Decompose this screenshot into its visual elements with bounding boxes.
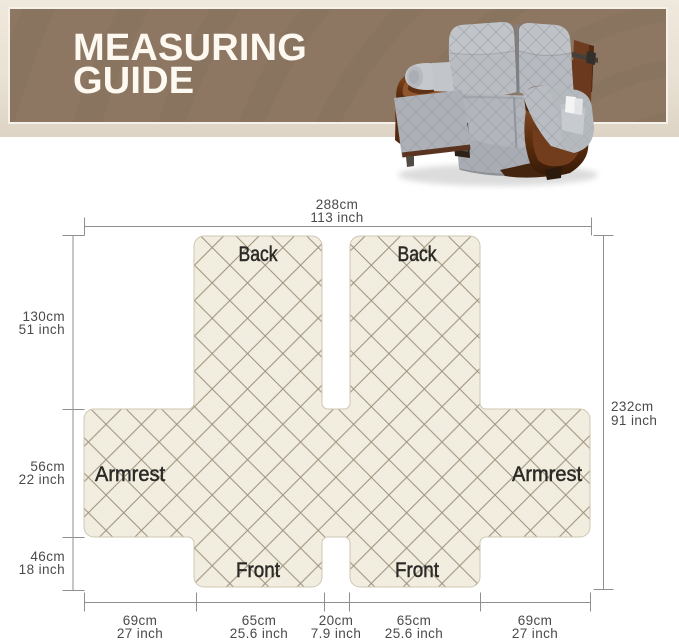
svg-text:27 inch: 27 inch — [512, 626, 558, 640]
svg-text:25.6 inch: 25.6 inch — [385, 626, 443, 640]
svg-text:Back: Back — [239, 243, 278, 266]
svg-text:Front: Front — [236, 559, 280, 582]
svg-text:18 inch: 18 inch — [19, 562, 65, 577]
svg-text:27 inch: 27 inch — [117, 626, 163, 640]
svg-text:232cm: 232cm — [611, 399, 654, 414]
svg-text:51 inch: 51 inch — [19, 322, 65, 337]
svg-text:7.9 inch: 7.9 inch — [311, 626, 361, 640]
svg-text:Armrest: Armrest — [95, 463, 165, 486]
svg-text:113 inch: 113 inch — [310, 210, 363, 225]
svg-text:91 inch: 91 inch — [611, 413, 657, 428]
svg-text:25.6 inch: 25.6 inch — [230, 626, 288, 640]
svg-text:Back: Back — [398, 243, 437, 266]
svg-text:22 inch: 22 inch — [19, 472, 65, 487]
svg-text:Front: Front — [395, 559, 439, 582]
svg-text:Armrest: Armrest — [512, 463, 582, 486]
